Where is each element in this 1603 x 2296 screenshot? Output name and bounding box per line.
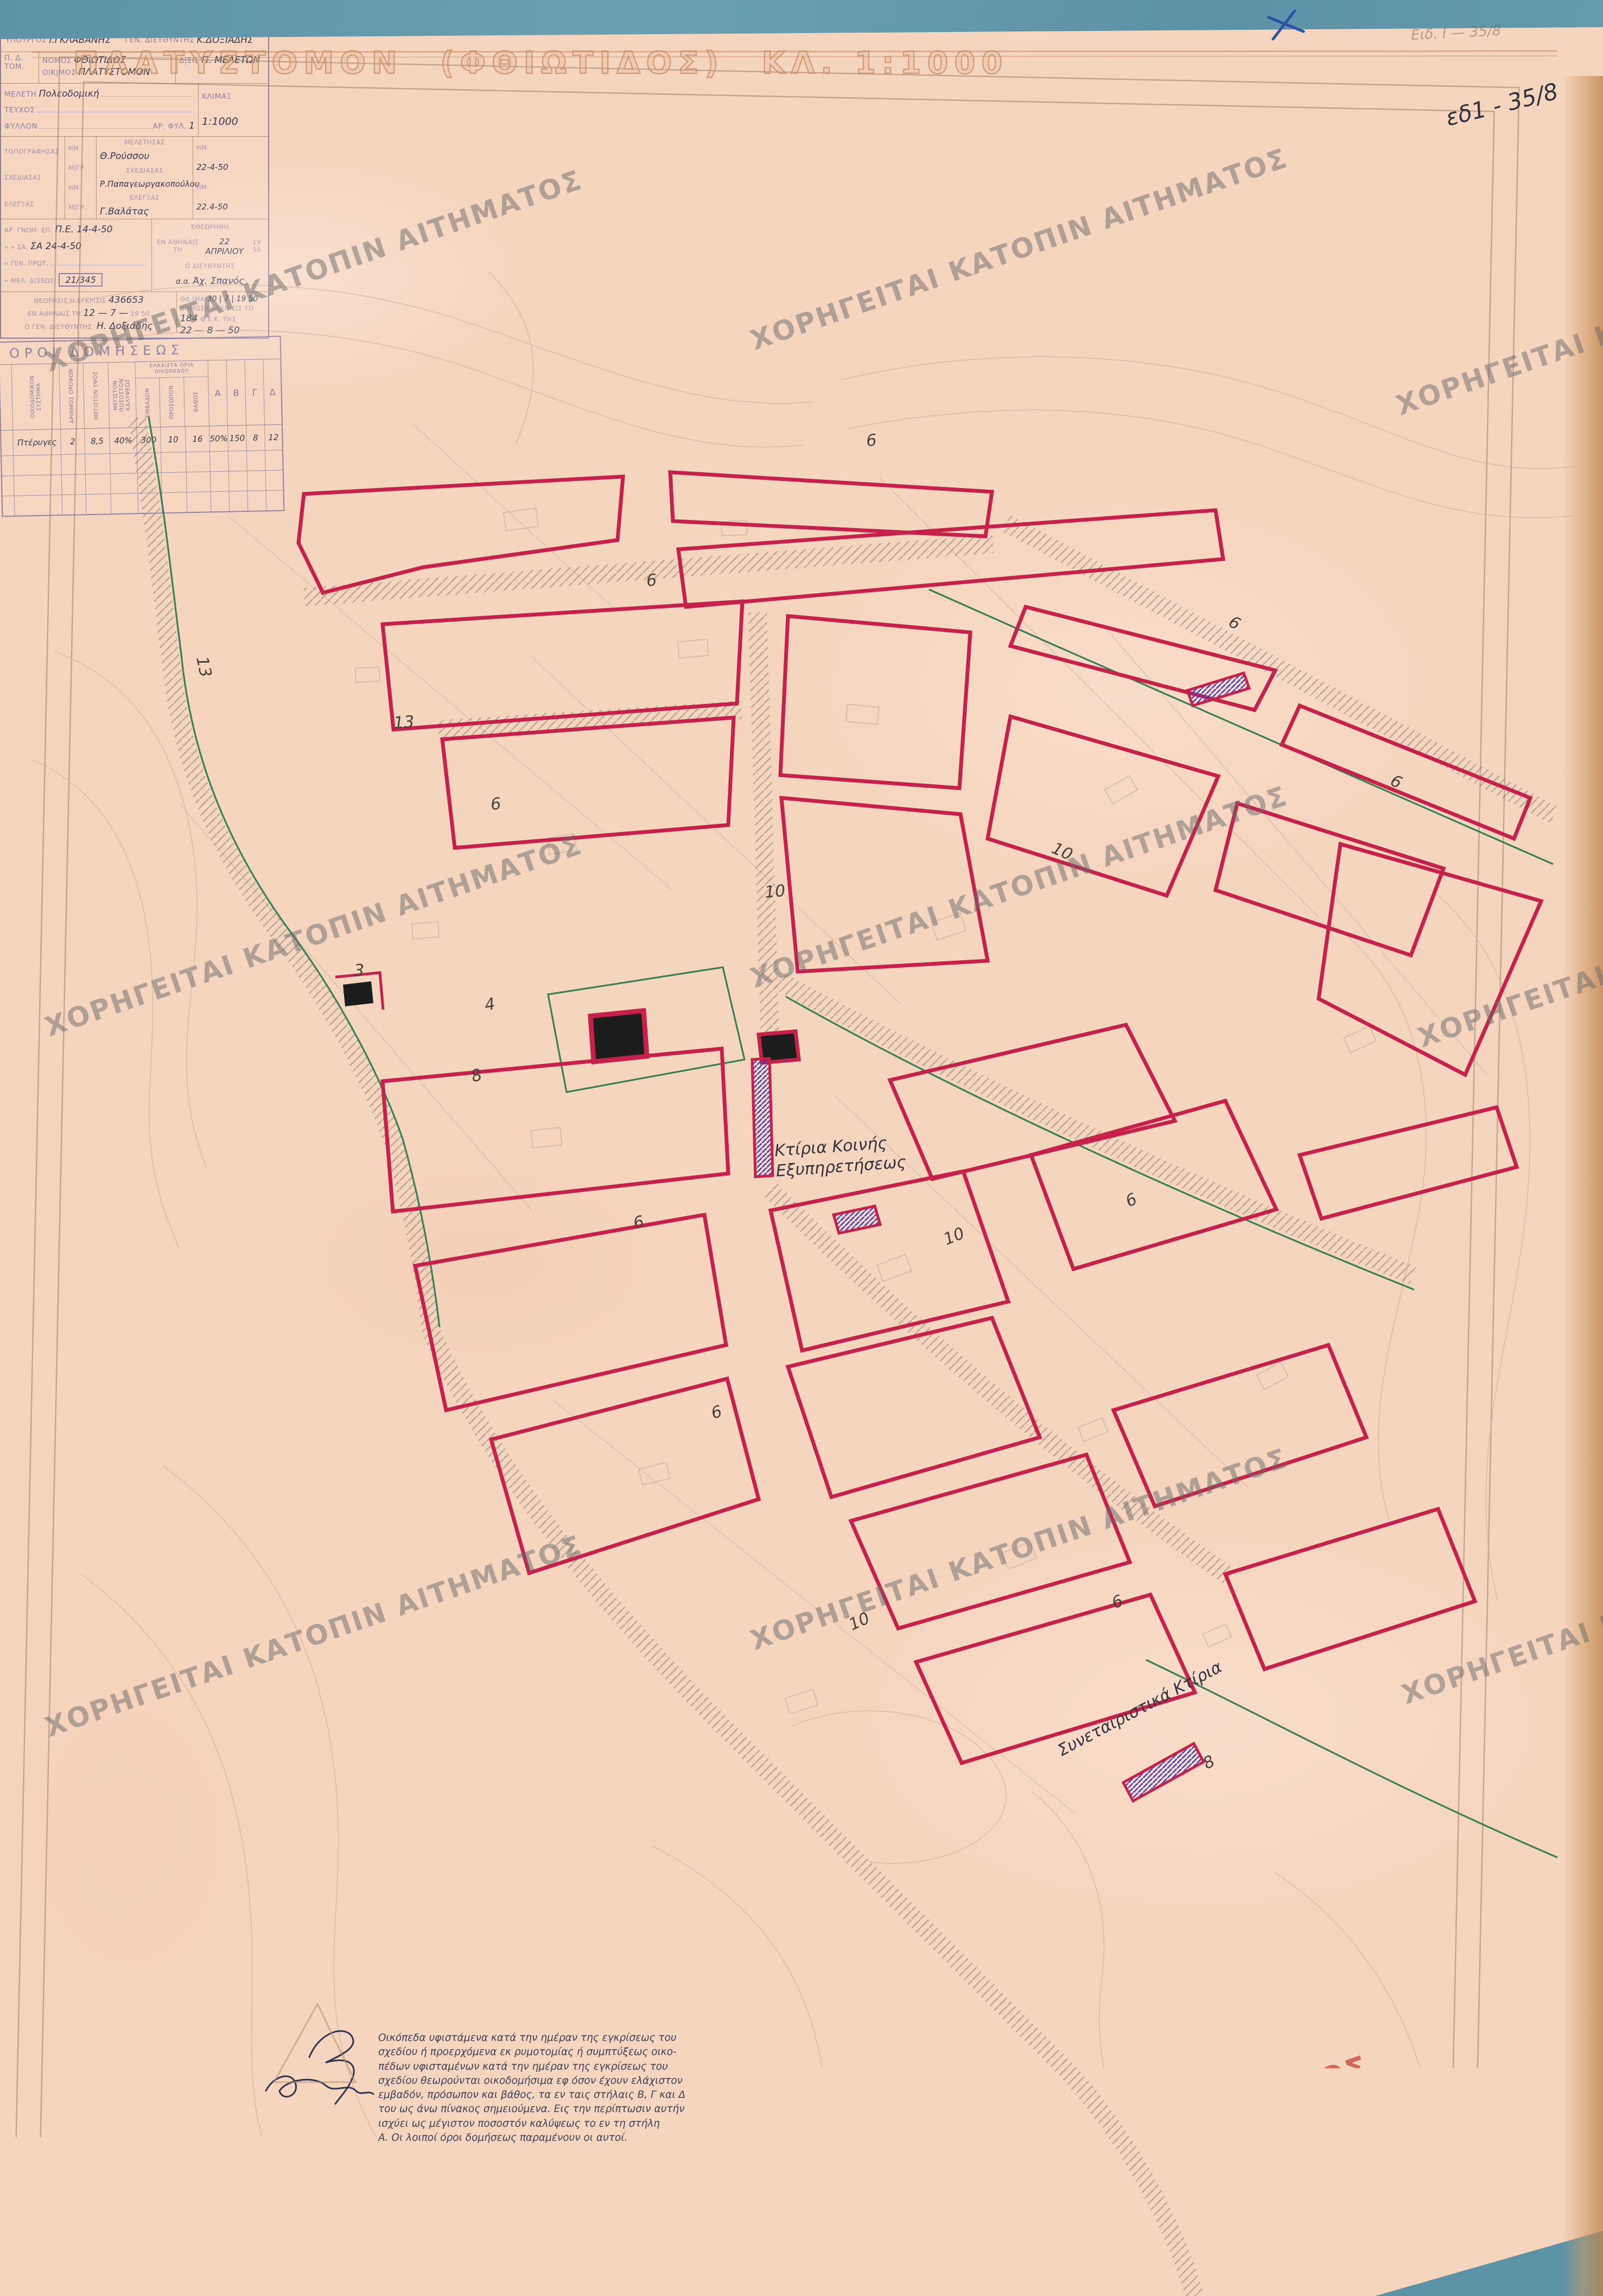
- street-width-number: 8: [1200, 1752, 1218, 1773]
- footer-ministry-title: ΥΠΟΥΡΓΕΙΟΝ ΟΙΚΙΣΜΟΥ ϗ ΑΝΟΙΚΟΔΟΜΗΣΕΩΣ: [61, 2216, 586, 2235]
- street-width-number: 3: [354, 961, 364, 980]
- street-width-number: 6: [631, 1212, 646, 1233]
- street-width-number: 13: [192, 655, 215, 679]
- street-width-number: 6: [866, 431, 877, 451]
- street-width-number: 6: [709, 1402, 724, 1423]
- note-line: πέδων υφισταμένων κατά την ημέραν της εγ…: [378, 2060, 639, 2074]
- church-building: [590, 1011, 647, 1062]
- map-title-town: ΠΛΑΤΥΣΤΟΜΟΝ: [73, 46, 403, 81]
- street-width-number: 4: [483, 994, 497, 1015]
- street-width-number: 10: [764, 881, 786, 902]
- town-plan-drawing: 6136136661010348610661068 Κτίρια ΚοινήςΕ…: [0, 0, 1603, 2296]
- road-hatching: [137, 418, 1554, 2296]
- street-width-number: 10: [941, 1224, 968, 1250]
- map-title-scale: ΚΛ. 1:1000: [762, 46, 1009, 81]
- public-buildings: [343, 981, 799, 1063]
- small-building: [343, 981, 373, 1006]
- cooperative-buildings-strip: [1123, 1743, 1204, 1801]
- street-width-number: 13: [393, 712, 415, 733]
- note-line: σχεδίου θεωρούνται οικοδομήσιμα εφ όσον …: [378, 2074, 639, 2088]
- note-line: Α. Οι λοιποί όροι δομήσεως παραμένουν οι…: [378, 2131, 639, 2145]
- map-label: Κτίρια ΚοινήςΕξυπηρετήσεως: [774, 1132, 907, 1181]
- block-outlines: [298, 472, 1541, 1763]
- street-width-number: 6: [1123, 1190, 1140, 1212]
- street-width-number: 6: [646, 570, 658, 591]
- note-line: ισχύει ως μέγιστον ποσοστόν καλύψεως το …: [378, 2117, 639, 2131]
- street-width-number: 6: [490, 794, 502, 814]
- map-title: ΠΛΑΤΥΣΤΟΜΟΝ (ΦΘΙΩΤΙΔΟΣ) ΚΛ. 1:1000: [73, 46, 1008, 81]
- note-line: του ως άνω πίνακος σημειούμενα. Εις την …: [378, 2102, 639, 2116]
- note-line: εμβαδόν, πρόσωπον και βάθος, τα εν ταις …: [378, 2088, 639, 2102]
- note-line: σχεδίου ή προερχόμενα εκ ρυμοτομίας ή συ…: [378, 2045, 639, 2059]
- street-width-number: 8: [469, 1065, 485, 1086]
- street-width-number: 6: [1225, 612, 1243, 634]
- service-buildings-strip: [752, 1058, 773, 1177]
- map-label: Συνεταιριστικά Κτίρια: [1054, 1658, 1225, 1760]
- building-terms-note: Οικόπεδα υφιστάμενα κατά την ημέραν της …: [378, 2031, 639, 2145]
- street-width-number: 10: [846, 1609, 873, 1635]
- contour-lines: [33, 271, 1574, 2291]
- note-line: Οικόπεδα υφιστάμενα κατά την ημέραν της …: [378, 2031, 639, 2045]
- service-strip-small: [834, 1206, 880, 1233]
- map-title-region: (ΦΘΙΩΤΙΔΟΣ): [440, 46, 724, 81]
